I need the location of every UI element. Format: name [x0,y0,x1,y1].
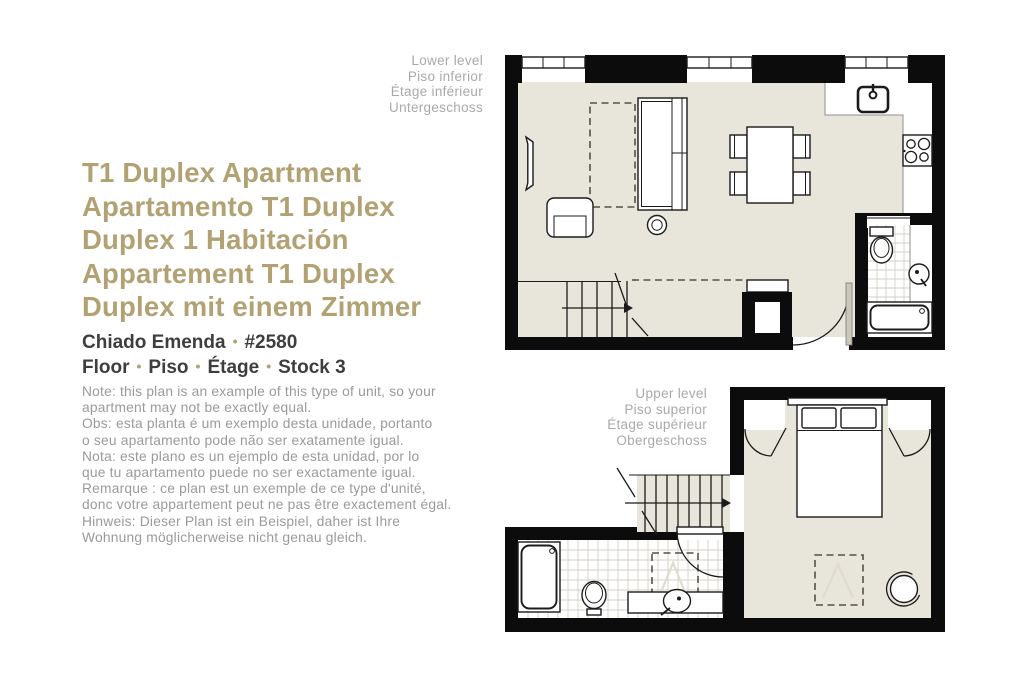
title-line: Apartamento T1 Duplex [82,190,421,224]
level-label-line: Piso inferior [389,69,483,85]
toilet [870,227,893,263]
note-line: Hinweis: Dieser Plan ist ein Beispiel, d… [82,514,451,530]
floor-word: Floor [82,357,130,378]
windows [522,57,908,82]
level-label-line: Untergeschoss [389,100,483,116]
floor-word: Étage [207,357,259,378]
lower-level-label: Lower level Piso inferior Étage inférieu… [389,53,483,116]
upper-level-floor-plan [505,385,945,632]
level-label-line: Lower level [389,53,483,69]
double-bed [788,398,887,517]
sofa [638,98,687,210]
title-line: Appartement T1 Duplex [82,257,421,291]
side-table [648,216,667,235]
note-line: Wohnung möglicherweise nicht genau gleic… [82,530,451,546]
note-line: Obs: esta planta é um exemplo desta unid… [82,416,451,432]
bullet-separator: • [226,333,245,349]
title-line: T1 Duplex Apartment [82,156,421,190]
bullet-separator: • [259,358,278,374]
note-line: Note: this plan is an example of this ty… [82,384,451,400]
disclaimer-note: Note: this plan is an example of this ty… [82,384,451,546]
window [687,57,752,82]
property-name: Chiado Emenda [82,332,226,353]
property-line: Chiado Emenda•#2580 [82,330,346,355]
bathtub [867,302,932,333]
bathtub [518,542,560,612]
bullet-separator: • [189,358,208,374]
pillow [802,408,836,428]
vanity [628,590,723,616]
window [845,57,908,82]
bathroom [867,225,932,337]
floor-line: Floor•Piso•Étage•Stock 3 [82,355,346,380]
title-line: Duplex 1 Habitación [82,223,421,257]
door-leaf [677,527,723,534]
pillow [841,408,876,428]
window-recess [888,400,931,430]
note-line: donc votre appartement peut ne pas être … [82,497,451,513]
entry-closet [742,280,792,337]
property-number: #2580 [244,332,297,353]
note-line: que tu apartamento puede no ser exactame… [82,465,451,481]
note-line: apartment may not be exactly equal. [82,400,451,416]
dining-table [747,127,793,203]
stove [903,135,932,166]
headboard [788,398,887,405]
floor-plan-page: T1 Duplex Apartment Apartamento T1 Duple… [0,0,1024,683]
property-info: Chiado Emenda•#2580 Floor•Piso•Étage•Sto… [82,330,346,379]
bathroom [518,527,723,618]
kitchen-sink [858,84,888,112]
window [522,57,585,82]
armchair [547,198,593,237]
title-line: Duplex mit einem Zimmer [82,290,421,324]
floor-word: Stock 3 [278,357,346,378]
note-line: o seu apartamento pode não ser exatament… [82,433,451,449]
lower-level-floor-plan [505,55,945,350]
door-leaf [846,283,852,345]
floor-word: Piso [148,357,188,378]
note-line: Remarque : ce plan est un exemple de ce … [82,481,451,497]
stairs-up [617,468,731,535]
apartment-title: T1 Duplex Apartment Apartamento T1 Duple… [82,156,421,324]
level-label-line: Étage inférieur [389,84,483,100]
window-recess [744,400,785,430]
bullet-separator: • [130,358,149,374]
note-line: Nota: este plano es un ejemplo de esta u… [82,449,451,465]
